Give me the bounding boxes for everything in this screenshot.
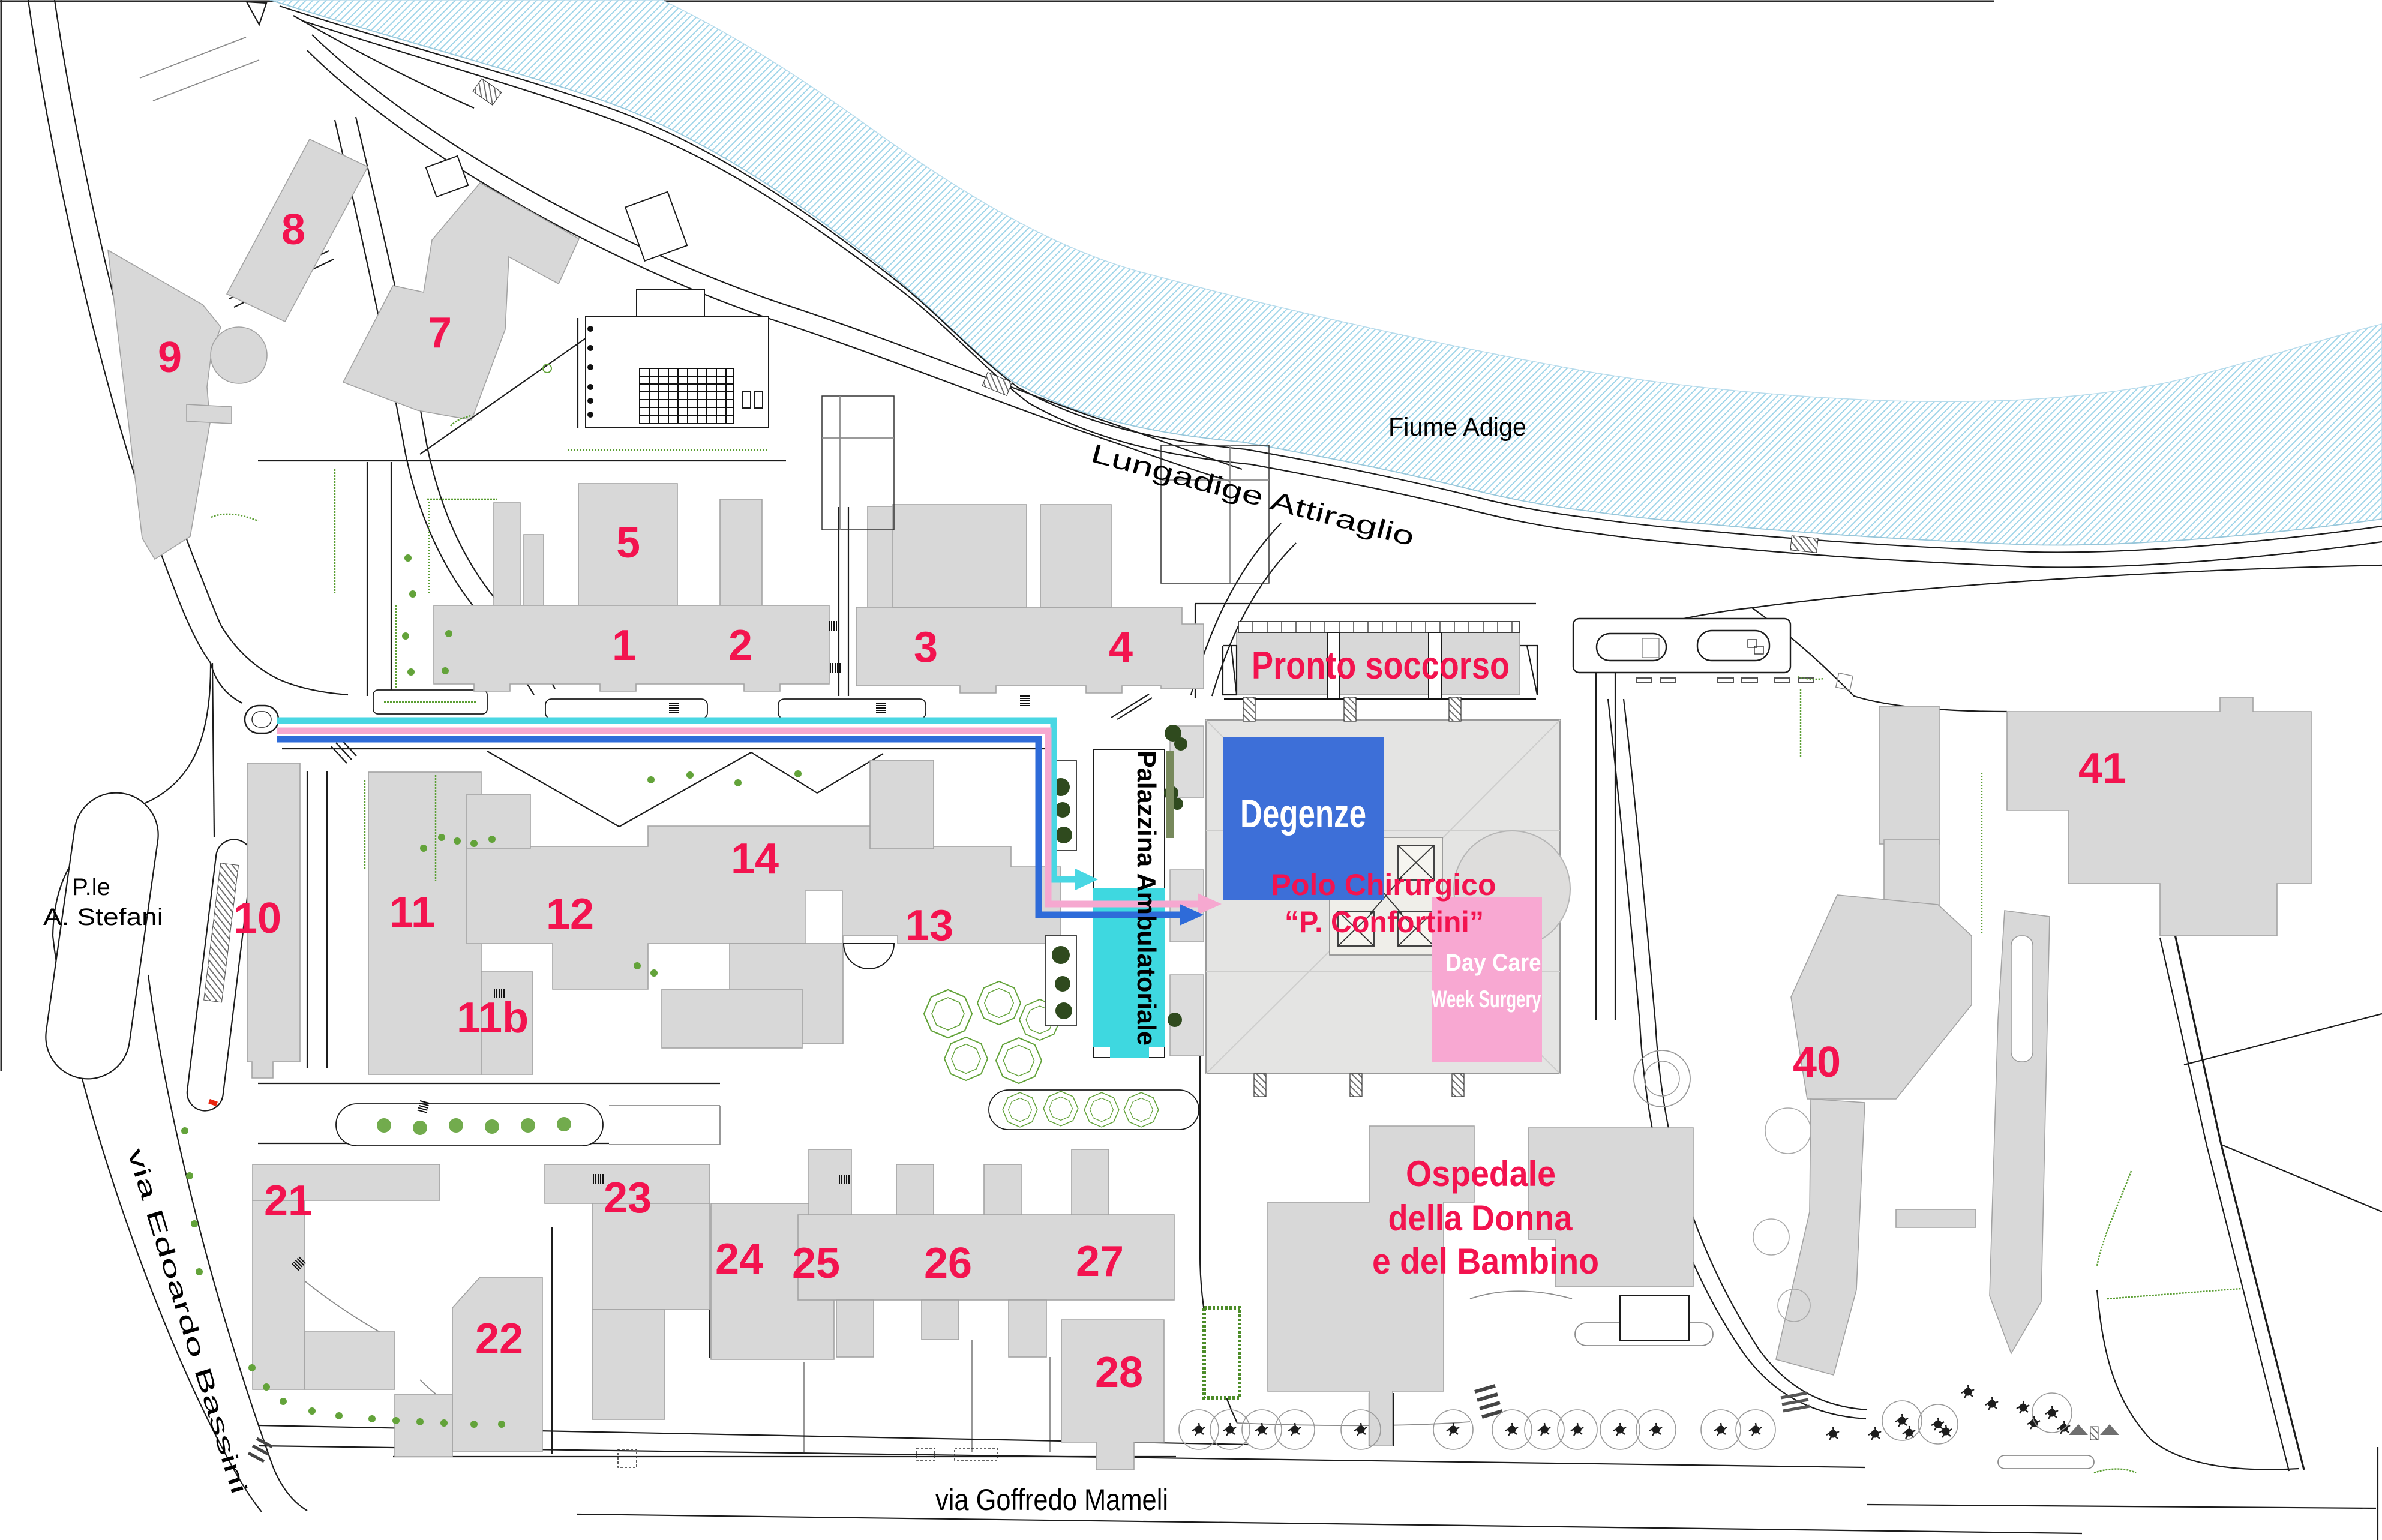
svg-text:11b: 11b	[457, 994, 529, 1042]
svg-text:12: 12	[546, 890, 594, 938]
svg-text:41: 41	[2078, 745, 2126, 792]
svg-text:11: 11	[389, 888, 435, 936]
svg-text:A. Stefani: A. Stefani	[43, 904, 163, 930]
svg-text:della Donna: della Donna	[1388, 1198, 1573, 1238]
svg-text:40: 40	[1793, 1038, 1841, 1086]
svg-text:1: 1	[612, 622, 636, 670]
svg-text:3: 3	[914, 623, 938, 671]
svg-text:Polo Chirurgico: Polo Chirurgico	[1271, 868, 1496, 902]
svg-text:5: 5	[616, 519, 640, 567]
svg-text:23: 23	[604, 1174, 652, 1222]
svg-text:Ospedale: Ospedale	[1406, 1154, 1556, 1194]
svg-text:24: 24	[715, 1235, 763, 1283]
svg-text:Pronto soccorso: Pronto soccorso	[1252, 643, 1510, 687]
svg-text:26: 26	[924, 1239, 972, 1287]
svg-text:4: 4	[1109, 623, 1133, 671]
svg-text:25: 25	[792, 1239, 840, 1287]
svg-text:14: 14	[731, 835, 779, 883]
svg-text:27: 27	[1076, 1238, 1124, 1286]
svg-text:8: 8	[281, 206, 305, 254]
svg-text:P.le: P.le	[72, 874, 110, 900]
svg-text:13: 13	[905, 902, 953, 950]
svg-text:Fiume Adige: Fiume Adige	[1388, 413, 1526, 442]
svg-text:Palazzina Ambulatoriale: Palazzina Ambulatoriale	[1132, 751, 1161, 1046]
svg-text:9: 9	[158, 334, 182, 382]
svg-text:22: 22	[475, 1315, 523, 1363]
svg-text:“P. Confortini”: “P. Confortini”	[1285, 905, 1484, 939]
svg-text:Day Care: Day Care	[1446, 950, 1541, 976]
svg-text:Week Surgery: Week Surgery	[1432, 986, 1542, 1013]
svg-text:2: 2	[728, 622, 752, 670]
svg-text:28: 28	[1095, 1349, 1143, 1397]
svg-text:21: 21	[264, 1177, 312, 1225]
svg-text:Degenze: Degenze	[1240, 791, 1366, 836]
svg-text:7: 7	[428, 309, 452, 357]
svg-text:e del Bambino: e del Bambino	[1372, 1241, 1599, 1281]
svg-text:10: 10	[233, 894, 281, 942]
svg-text:via Goffredo Mameli: via Goffredo Mameli	[935, 1483, 1168, 1517]
